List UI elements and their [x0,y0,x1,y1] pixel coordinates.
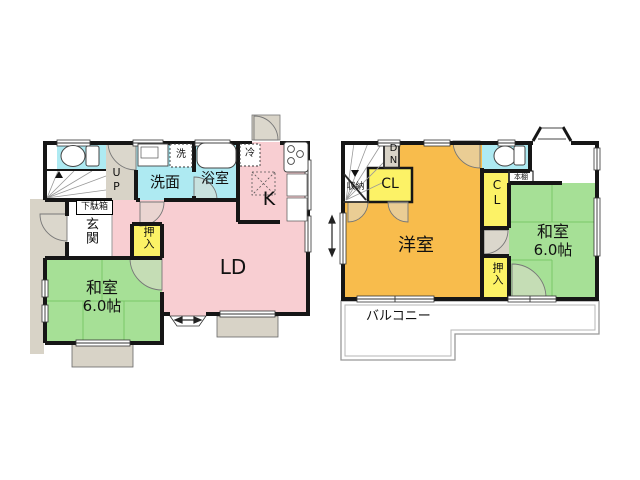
arrow-down-head [329,249,335,256]
label-shoe-box: 下駄箱 [76,200,113,215]
label-fridge: 冷 [239,148,261,159]
kitchen-counter-b [287,198,307,221]
label-oshiire-2f: 押入 [489,262,503,296]
label-balcony: バルコニー [366,310,466,324]
label-japanese-room-1f: 和室 [60,279,144,297]
label-washroom: 洗面 [136,174,194,191]
hall-2f [530,141,597,183]
toilet-icon-1f [61,146,85,167]
toilet-tank-1f [86,146,99,166]
label-japanese-room-size-2f: 6.0帖 [515,242,591,259]
label-bookshelf: 本棚 [509,171,533,183]
label-storage: 収納 [342,183,369,193]
label-japanese-room-2f: 和室 [515,223,591,241]
label-closet-cl-mid: CL [489,178,503,222]
label-oshiire-1f: 押入 [140,226,154,258]
label-western-room: 洋室 [384,236,448,256]
label-stairs-up: UP [104,166,122,202]
label-bathroom: 浴室 [192,172,238,187]
label-washer: 洗 [170,149,192,160]
kitchen-counter-a [287,174,307,196]
label-closet-cl-top: CL [368,177,412,192]
toilet-icon-2f [494,146,516,166]
bay-window-ld [217,316,278,337]
bay-window-japanese-1f [72,344,133,367]
label-japanese-room-size-1f: 6.0帖 [60,298,144,315]
bathtub-icon [197,143,236,168]
label-entrance: 玄関 [81,217,97,259]
floor-plan-page: UP 洗面 浴室 洗 冷 K LD 下駄箱 玄関 押入 和室 6.0帖 DN 収… [0,0,640,480]
stove-icon [284,142,308,172]
window-ld-angled [170,316,206,326]
sink-basin [141,147,158,158]
arrow-up-head [329,216,335,223]
label-stairs-down: DN [385,143,399,169]
label-living-dining: LD [211,256,255,278]
label-kitchen: K [256,189,282,210]
toilet-tank-2f [514,146,525,165]
